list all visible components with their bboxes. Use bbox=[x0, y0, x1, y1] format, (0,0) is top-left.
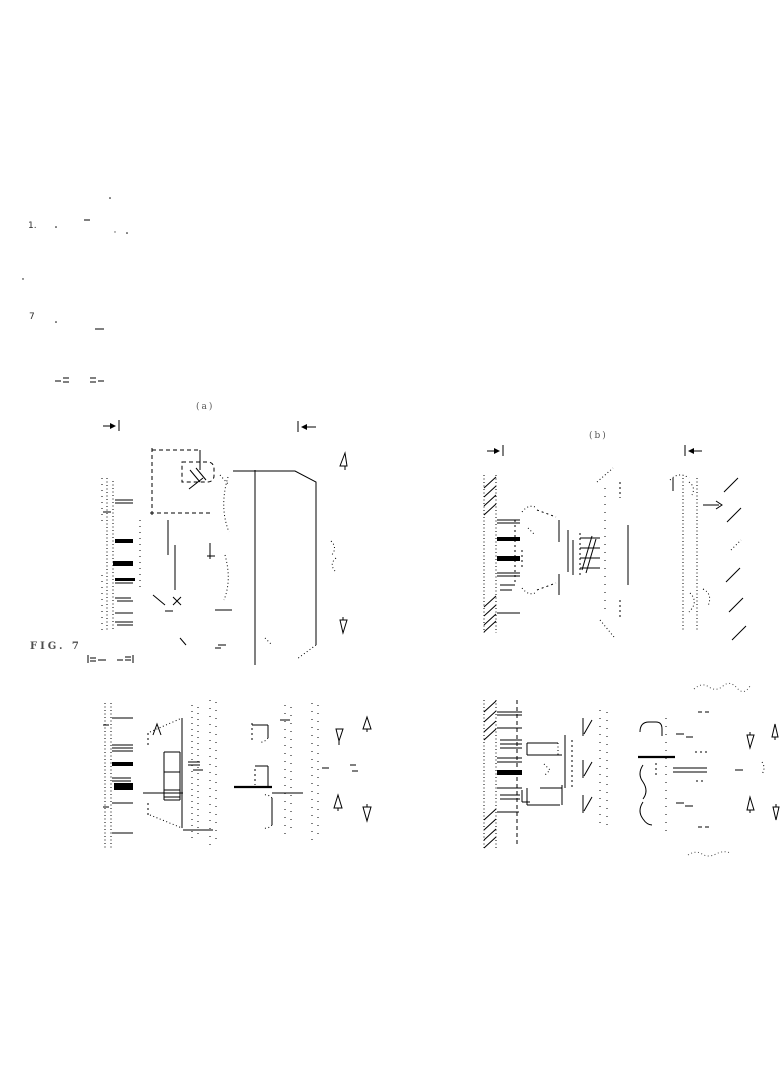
panel-c-drawing bbox=[95, 695, 385, 865]
cone-trapezoid bbox=[148, 718, 182, 828]
section-cut-marker-left bbox=[103, 420, 119, 431]
patent-drawing-page: { "page": { "background_color": "#ffffff… bbox=[0, 0, 784, 1066]
panel-a-label: (a) bbox=[196, 402, 214, 412]
hatched-wall-right bbox=[724, 478, 746, 640]
figure-caption: FIG. 7 bbox=[30, 641, 82, 652]
yoke-step-profile bbox=[140, 448, 215, 645]
section-cut-marker-right bbox=[298, 421, 316, 432]
frame-outline bbox=[233, 471, 316, 659]
panel-b-drawing bbox=[480, 440, 755, 665]
stray-dots bbox=[22, 197, 128, 329]
basket-arc-fragments bbox=[597, 468, 614, 637]
arrowhead-marker-bottom bbox=[340, 617, 347, 633]
section-cut-marker-right bbox=[685, 445, 702, 456]
channel-shapes bbox=[522, 735, 572, 805]
panel-a-drawing bbox=[95, 415, 357, 700]
stray-glyph-mid: 7 bbox=[29, 312, 35, 322]
panel-d-drawing bbox=[480, 690, 782, 875]
surround-curl-fragments bbox=[331, 541, 336, 571]
hatched-wall-left bbox=[484, 700, 522, 848]
bracket-shapes bbox=[252, 723, 272, 828]
frame-right-assembly bbox=[620, 475, 722, 632]
cone-profile bbox=[215, 470, 272, 665]
small-arrow-pair bbox=[55, 378, 104, 382]
cone-trapezoid bbox=[515, 506, 573, 595]
spider-bracket-shapes bbox=[638, 718, 675, 835]
section-cut-marker-left bbox=[487, 445, 503, 456]
magnet-terminal-stack bbox=[103, 703, 133, 850]
dimension-arrows bbox=[322, 717, 371, 821]
baseline-rails bbox=[143, 787, 303, 830]
voice-coil-hatch bbox=[583, 710, 607, 830]
hatched-wall-left bbox=[484, 475, 520, 633]
dashed-axis-columns bbox=[188, 700, 318, 845]
stray-glyph-top: 1. bbox=[28, 221, 37, 231]
magnet-terminal-stack bbox=[102, 478, 135, 632]
arrowhead-marker-top bbox=[340, 453, 347, 470]
